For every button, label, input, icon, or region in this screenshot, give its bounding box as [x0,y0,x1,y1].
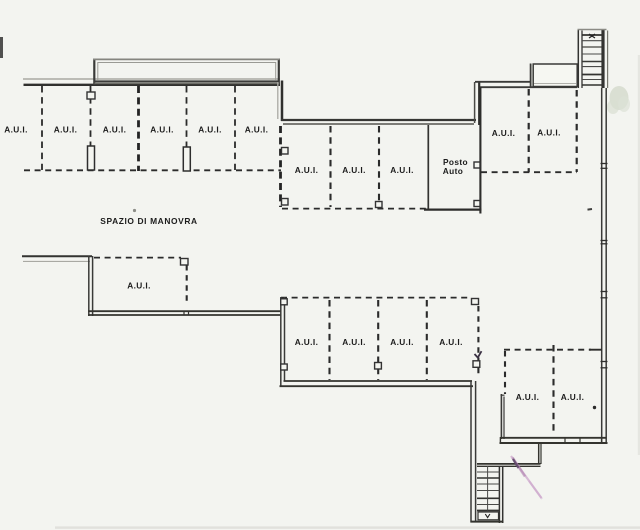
svg-text:A.U.I.: A.U.I. [4,125,28,135]
svg-text:A.U.I.: A.U.I. [127,280,151,290]
svg-text:A.U.I.: A.U.I. [103,125,127,135]
svg-text:A.U.I.: A.U.I. [390,165,414,175]
svg-text:A.U.I.: A.U.I. [54,125,78,135]
svg-text:A.U.I.: A.U.I. [537,128,561,138]
svg-text:A.U.I.: A.U.I. [295,337,319,347]
svg-text:A.U.I.: A.U.I. [150,125,174,135]
svg-text:Auto: Auto [443,166,464,176]
svg-text:A.U.I.: A.U.I. [561,392,585,402]
svg-text:A.U.I.: A.U.I. [342,165,366,175]
svg-text:SPAZIO DI MANOVRA: SPAZIO DI MANOVRA [100,216,197,226]
svg-text:A.U.I.: A.U.I. [198,125,222,135]
svg-text:A.U.I.: A.U.I. [516,392,540,402]
svg-text:A.U.I.: A.U.I. [295,165,319,175]
svg-text:A.U.I.: A.U.I. [439,337,463,347]
svg-text:A.U.I.: A.U.I. [390,337,414,347]
svg-text:A.U.I.: A.U.I. [492,128,516,138]
svg-text:A.U.I.: A.U.I. [245,125,269,135]
svg-text:A.U.I.: A.U.I. [342,337,366,347]
